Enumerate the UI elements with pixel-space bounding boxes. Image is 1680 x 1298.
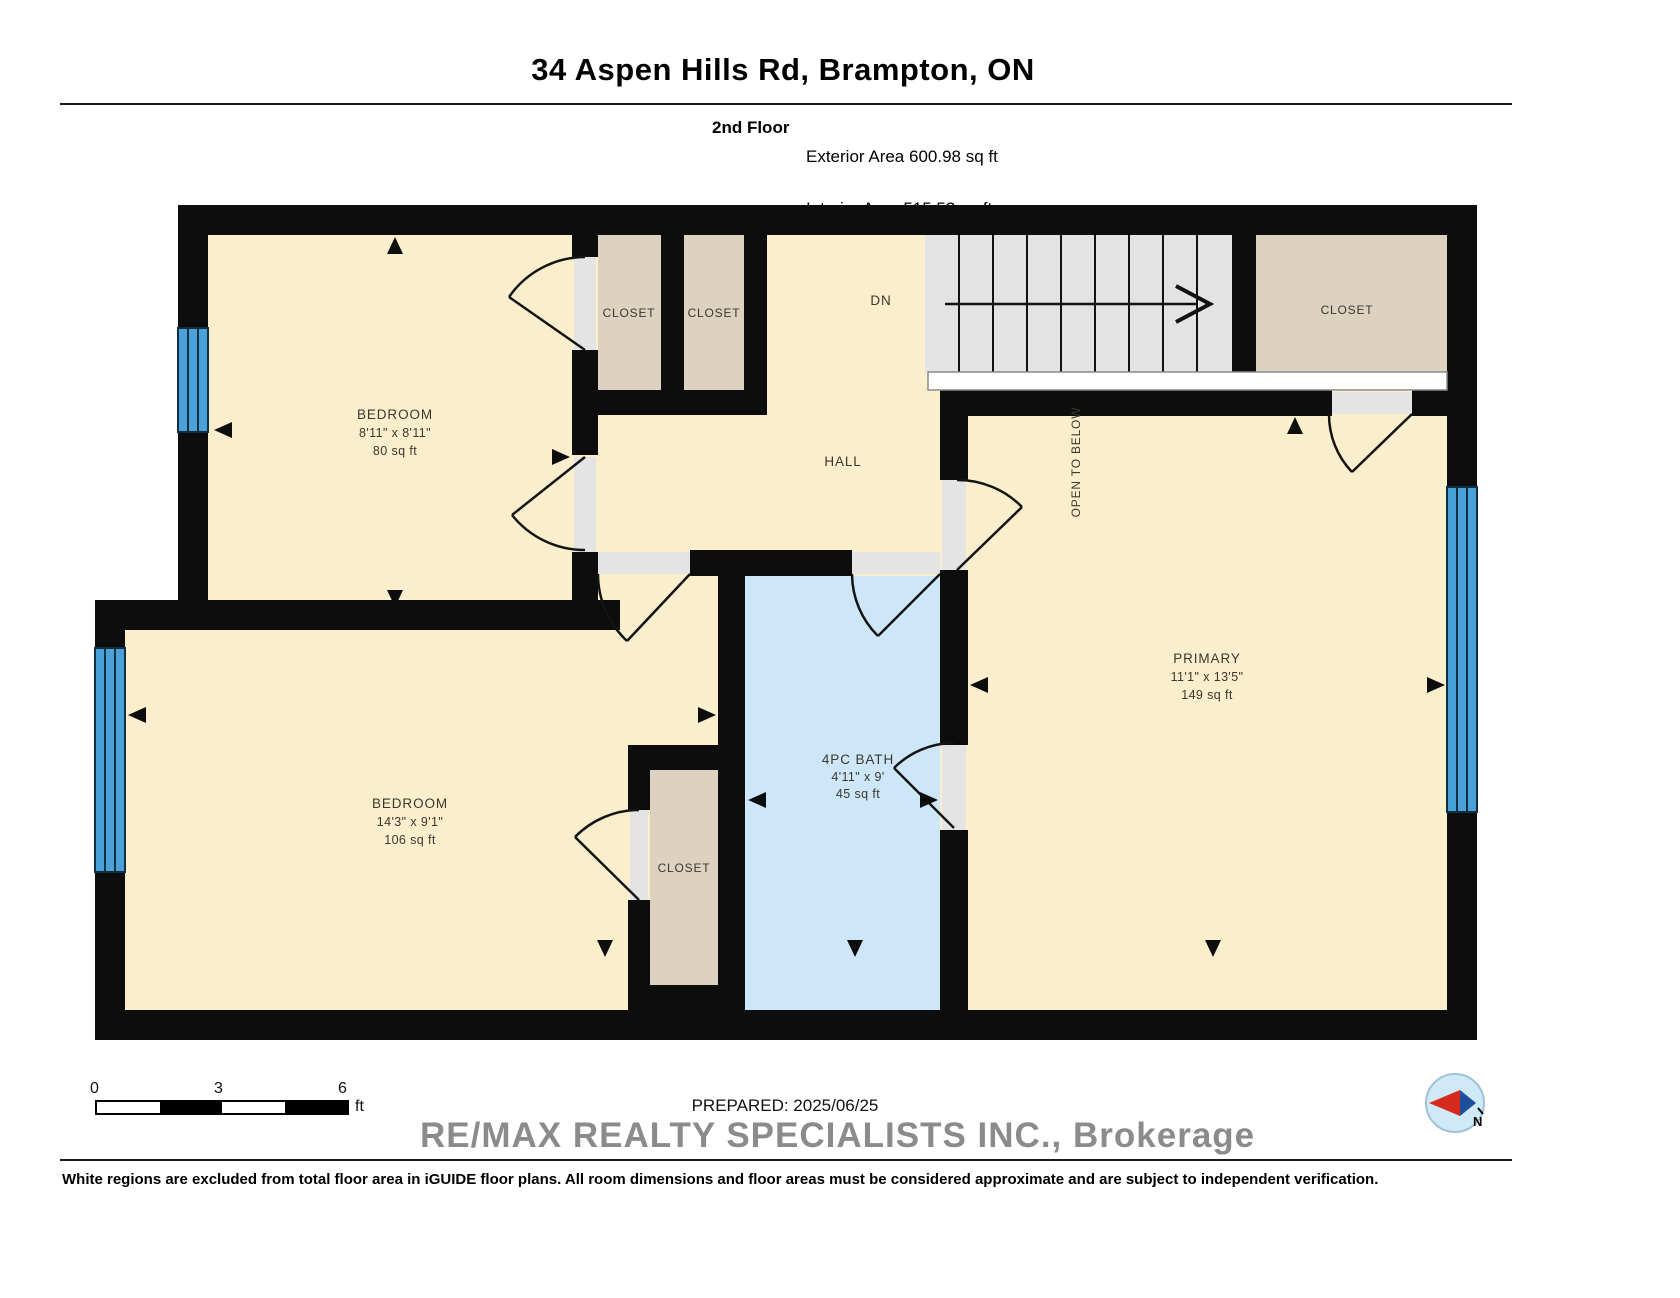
window-bedroom-bottom — [95, 648, 125, 872]
door-gap-bath — [852, 552, 940, 574]
wall-closet2-right — [744, 232, 767, 392]
compass: N — [1422, 1070, 1488, 1136]
brokerage-watermark: RE/MAX REALTY SPECIALISTS INC., Brokerag… — [420, 1116, 1160, 1156]
floor-plan-page: 34 Aspen Hills Rd, Brampton, ON 2nd Floo… — [0, 0, 1680, 1298]
bath-area: 45 sq ft — [836, 787, 880, 801]
bath-label: 4PC BATH — [822, 752, 894, 767]
floor-label: 2nd Floor — [712, 118, 789, 138]
window-bedroom-top — [178, 328, 208, 432]
wall-bottom — [95, 1010, 1477, 1040]
scale-seg — [285, 1102, 348, 1113]
wall-hall-bottom — [690, 550, 852, 576]
door-gap-primary — [942, 480, 966, 570]
wall-primary-top-b — [1412, 390, 1447, 416]
door-gap-bedroom2 — [598, 552, 690, 574]
wall-closets-bottom — [572, 390, 767, 415]
door-gap-bedroom1-a — [574, 257, 596, 350]
stairs-dn-label: DN — [870, 293, 891, 308]
wall-between-closets — [661, 232, 684, 392]
closet-top-mid-label: CLOSET — [688, 306, 741, 320]
scale-tick-0: 0 — [90, 1080, 99, 1098]
bedroom-top-area: 80 sq ft — [373, 444, 417, 458]
bedroom-top-dims: 8'11" x 8'11" — [359, 426, 431, 440]
closet-bottom-floor — [650, 770, 718, 985]
exterior-area: Exterior Area 600.98 sq ft — [806, 144, 998, 170]
window-primary — [1447, 487, 1477, 812]
scale-tick-3: 3 — [214, 1080, 223, 1098]
scale-unit-label: ft — [355, 1098, 364, 1116]
floor-plan-svg: BEDROOM 8'11" x 8'11" 80 sq ft CLOSET CL… — [0, 200, 1680, 1050]
wall-closet-bottom-bottom — [628, 985, 740, 1010]
prepared-date: PREPARED: 2025/06/25 — [600, 1096, 970, 1116]
wall-closet-bottom-left-b — [628, 900, 650, 985]
scale-seg — [160, 1102, 223, 1113]
wall-stairs-right — [1232, 205, 1256, 372]
scale-tick-labels: 0 3 6 — [95, 1080, 355, 1096]
wall-bedrooms-divider — [95, 600, 620, 630]
wall-bath-primary-a — [940, 570, 968, 745]
compass-north-label: N — [1473, 1114, 1482, 1129]
scale-bar — [95, 1100, 349, 1115]
open-to-below-strip — [928, 372, 1447, 390]
page-title: 34 Aspen Hills Rd, Brampton, ON — [0, 52, 1566, 88]
bedroom-bottom-dims: 14'3" x 9'1" — [377, 815, 443, 829]
door-gap-closet-top-right — [1332, 392, 1412, 414]
wall-primary-top-a — [940, 390, 1332, 416]
wall-bath-primary-b — [940, 830, 968, 1010]
hall-label: HALL — [824, 454, 861, 469]
scale-seg — [222, 1102, 285, 1113]
bedroom-bottom-area: 106 sq ft — [384, 833, 436, 847]
bath-dims: 4'11" x 9' — [831, 770, 884, 784]
wall-hall-primary-a — [940, 390, 968, 480]
primary-dims: 11'1" x 13'5" — [1171, 670, 1244, 684]
door-gap-closet-bottom — [630, 810, 648, 900]
footer-rule — [60, 1159, 1512, 1161]
wall-top — [178, 205, 1477, 235]
door-gap-bath-right — [942, 745, 966, 830]
wall-bath-left — [718, 576, 745, 1010]
compass-icon: N — [1422, 1070, 1488, 1136]
floor-plan: BEDROOM 8'11" x 8'11" 80 sq ft CLOSET CL… — [0, 200, 1680, 1050]
closet-bottom-label: CLOSET — [658, 861, 711, 875]
scale-tick-6: 6 — [338, 1080, 347, 1098]
wall-bedroom1-right-a — [572, 232, 598, 257]
primary-area: 149 sq ft — [1181, 688, 1233, 702]
disclaimer-text: White regions are excluded from total fl… — [62, 1171, 1378, 1188]
bedroom-top-label: BEDROOM — [357, 407, 433, 422]
closet-top-right-label: CLOSET — [1321, 303, 1374, 317]
scale-seg — [97, 1102, 160, 1113]
header-rule — [60, 103, 1512, 105]
closet-top-left-label: CLOSET — [603, 306, 656, 320]
bedroom-bottom-label: BEDROOM — [372, 796, 448, 811]
open-to-below-label: OPEN TO BELOW — [1069, 407, 1083, 518]
wall-closet-bottom-left-a — [628, 745, 650, 810]
door-gap-bedroom1-b — [574, 457, 596, 552]
wall-bedroom1-right-c — [572, 552, 598, 630]
primary-label: PRIMARY — [1173, 651, 1241, 666]
